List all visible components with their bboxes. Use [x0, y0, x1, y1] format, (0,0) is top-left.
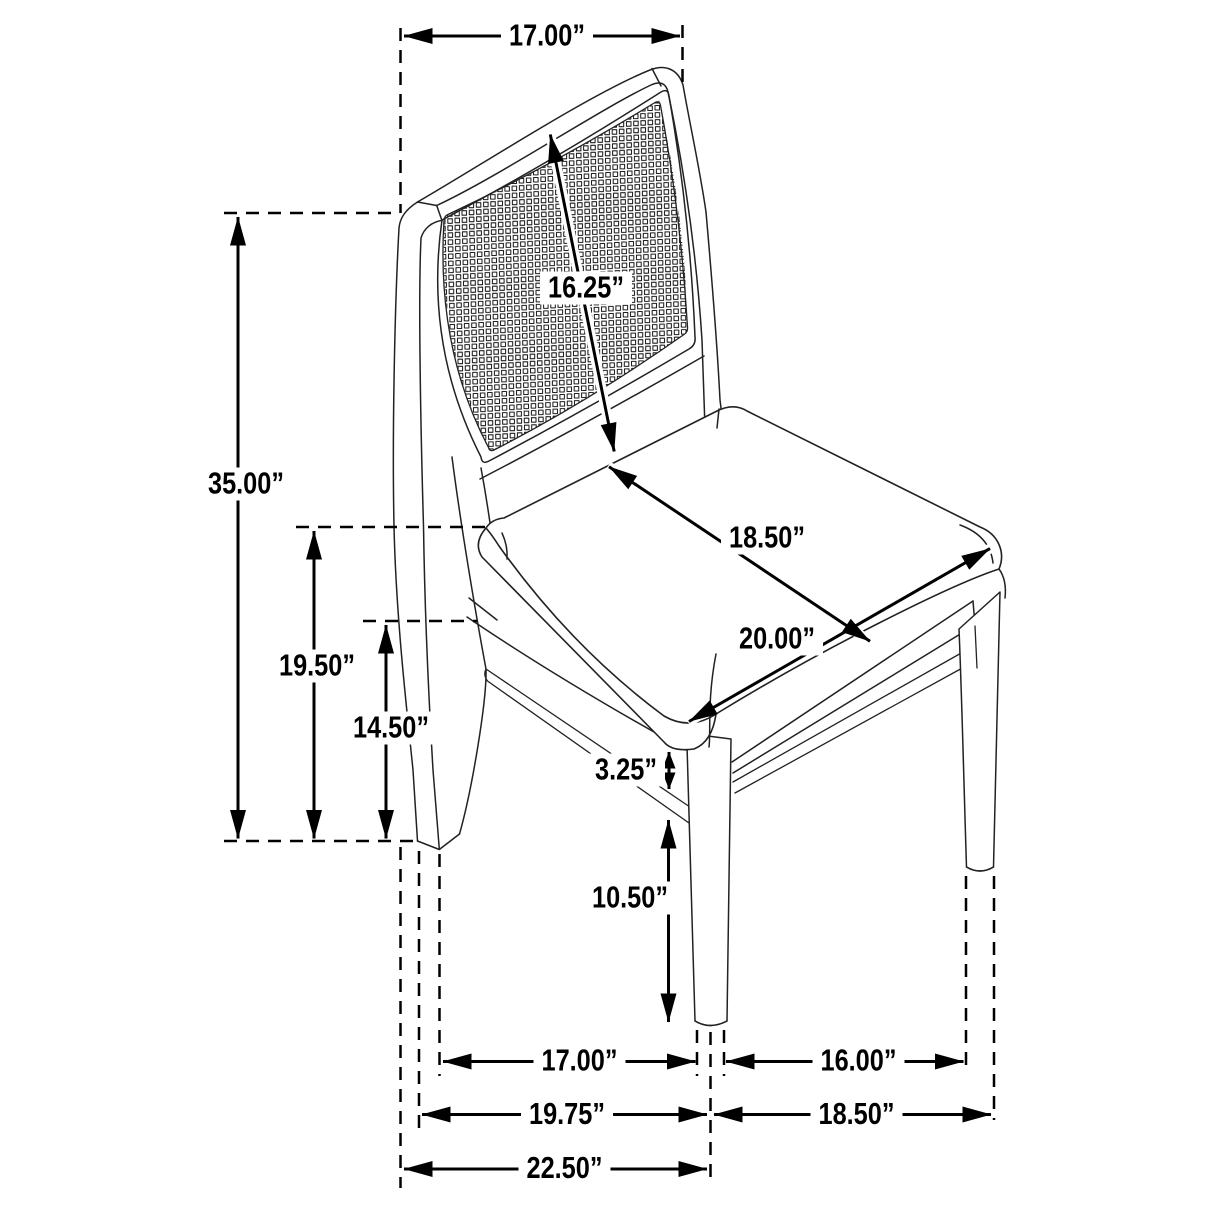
svg-text:16.25”: 16.25”	[548, 271, 624, 305]
svg-text:16.00”: 16.00”	[821, 1044, 897, 1078]
svg-text:18.50”: 18.50”	[819, 1097, 895, 1131]
svg-text:17.00”: 17.00”	[542, 1044, 618, 1078]
svg-text:22.50”: 22.50”	[527, 1151, 603, 1185]
svg-text:10.50”: 10.50”	[592, 881, 668, 915]
svg-text:3.25”: 3.25”	[595, 753, 657, 787]
svg-text:19.50”: 19.50”	[279, 649, 355, 683]
svg-text:19.75”: 19.75”	[529, 1097, 605, 1131]
svg-text:18.50”: 18.50”	[729, 521, 805, 555]
svg-text:14.50”: 14.50”	[353, 711, 429, 745]
svg-text:20.00”: 20.00”	[739, 622, 815, 656]
svg-text:17.00”: 17.00”	[509, 19, 585, 53]
svg-text:35.00”: 35.00”	[208, 467, 284, 501]
